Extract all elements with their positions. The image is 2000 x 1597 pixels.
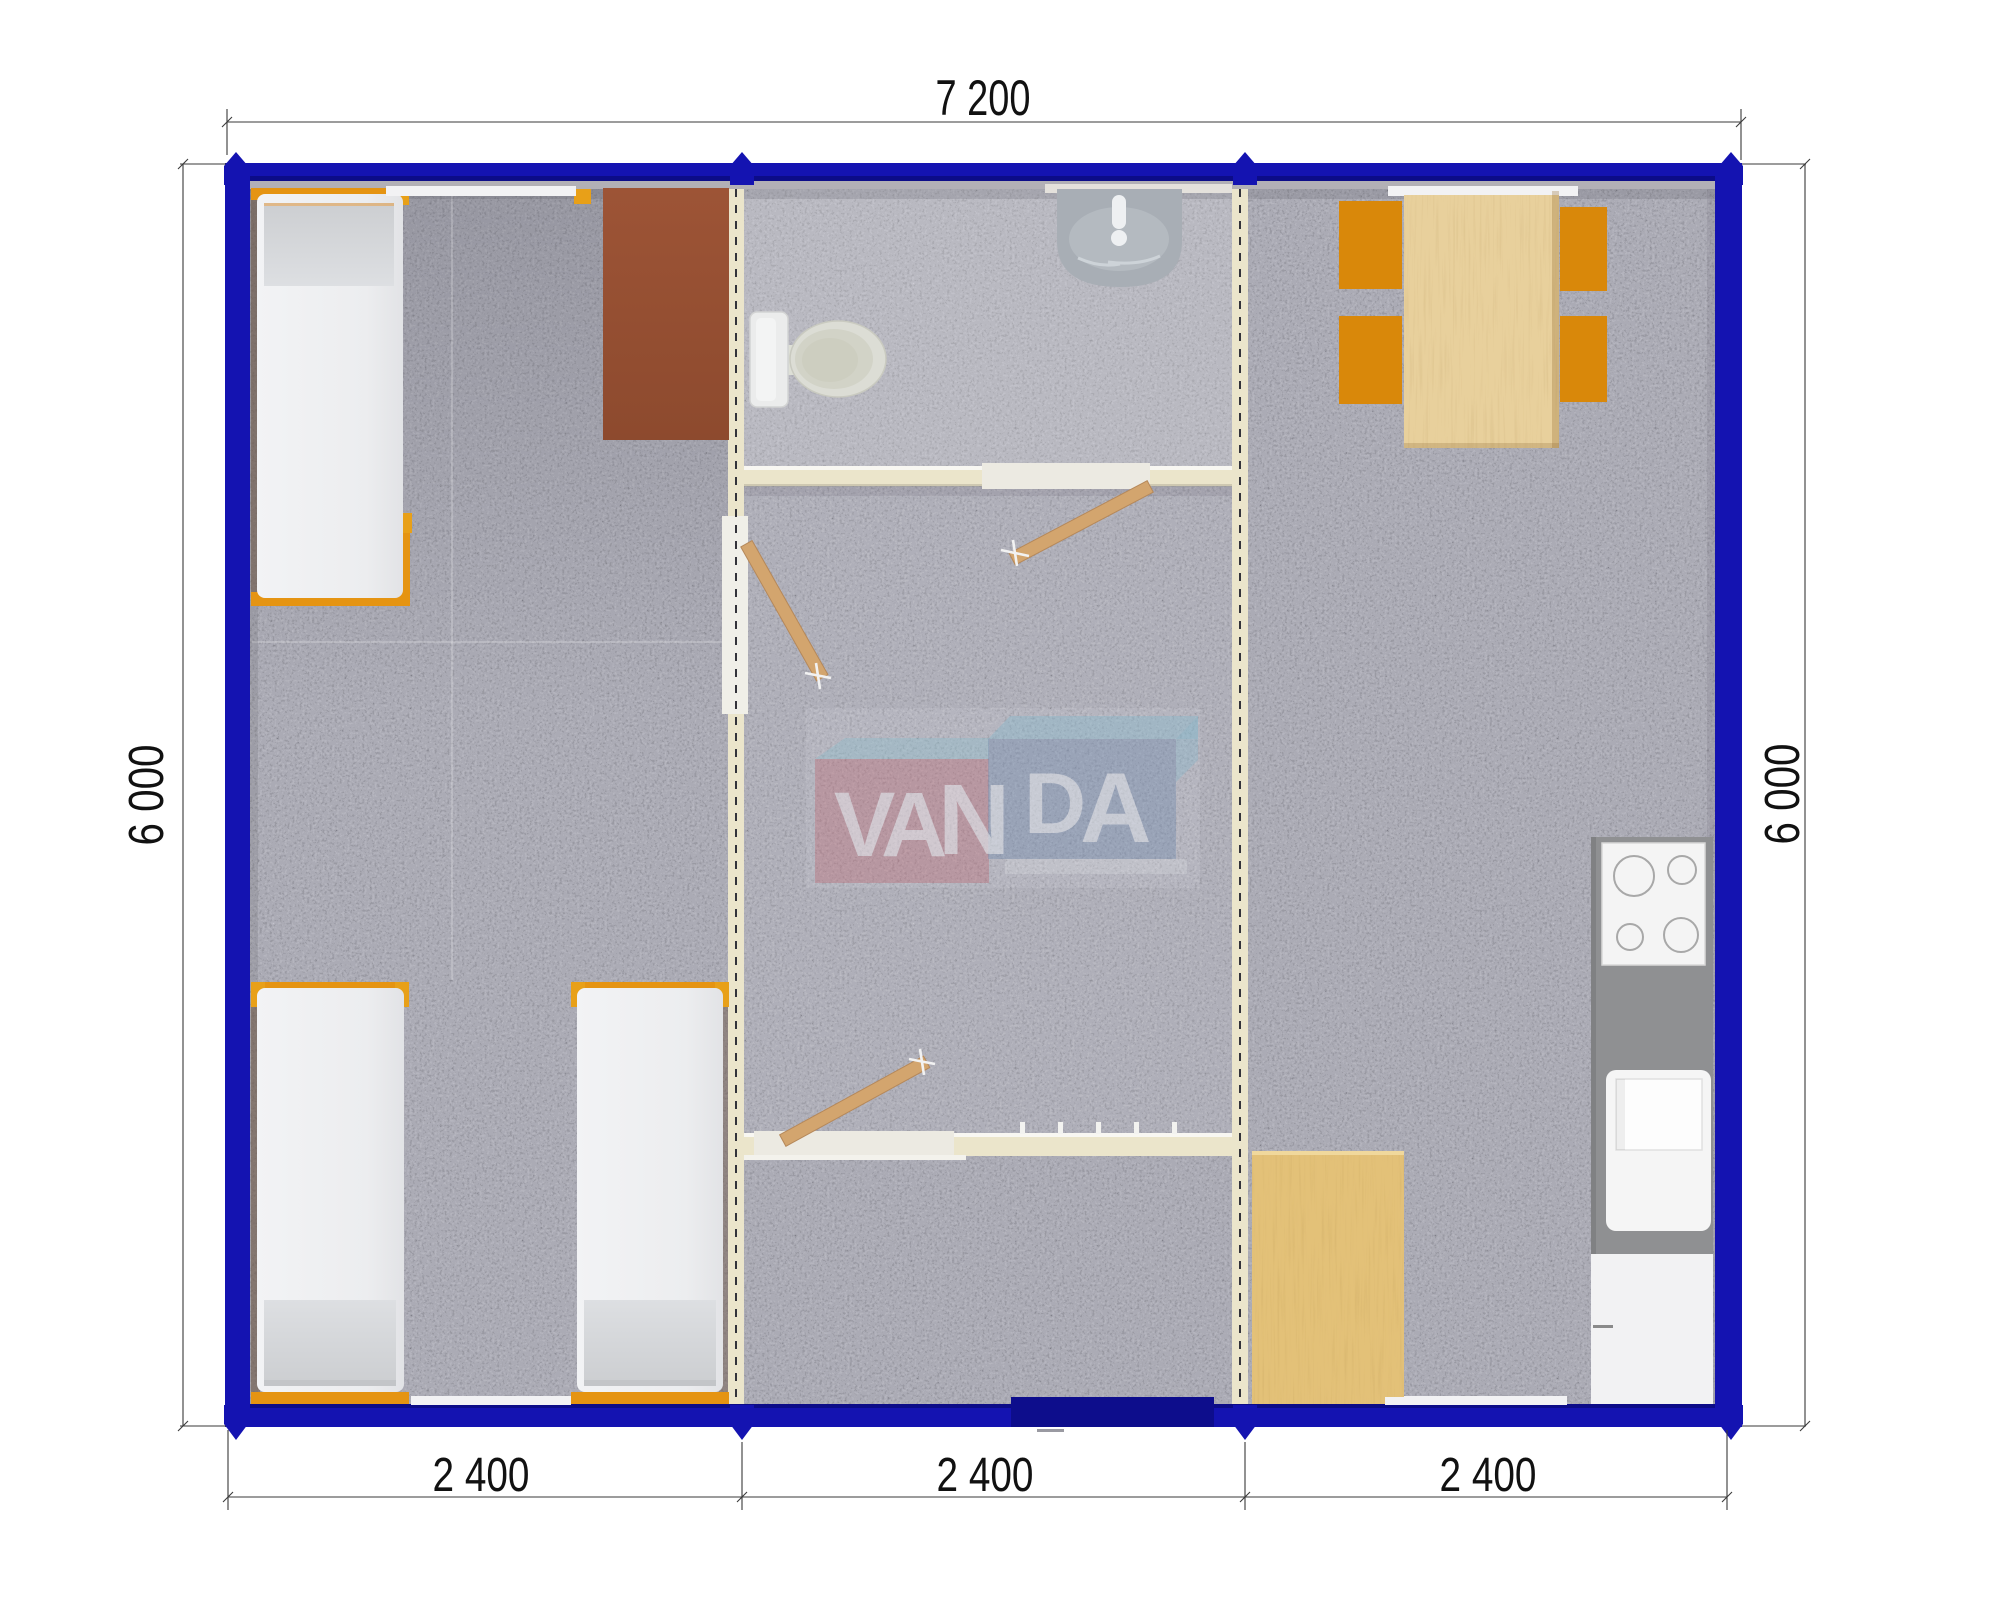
svg-text:7 200: 7 200: [936, 70, 1031, 126]
svg-text:2 400: 2 400: [433, 1449, 530, 1502]
svg-text:2 400: 2 400: [937, 1449, 1034, 1502]
svg-text:2 400: 2 400: [1440, 1449, 1537, 1502]
svg-text:6 000: 6 000: [1756, 744, 1810, 845]
svg-text:6 000: 6 000: [120, 745, 174, 846]
